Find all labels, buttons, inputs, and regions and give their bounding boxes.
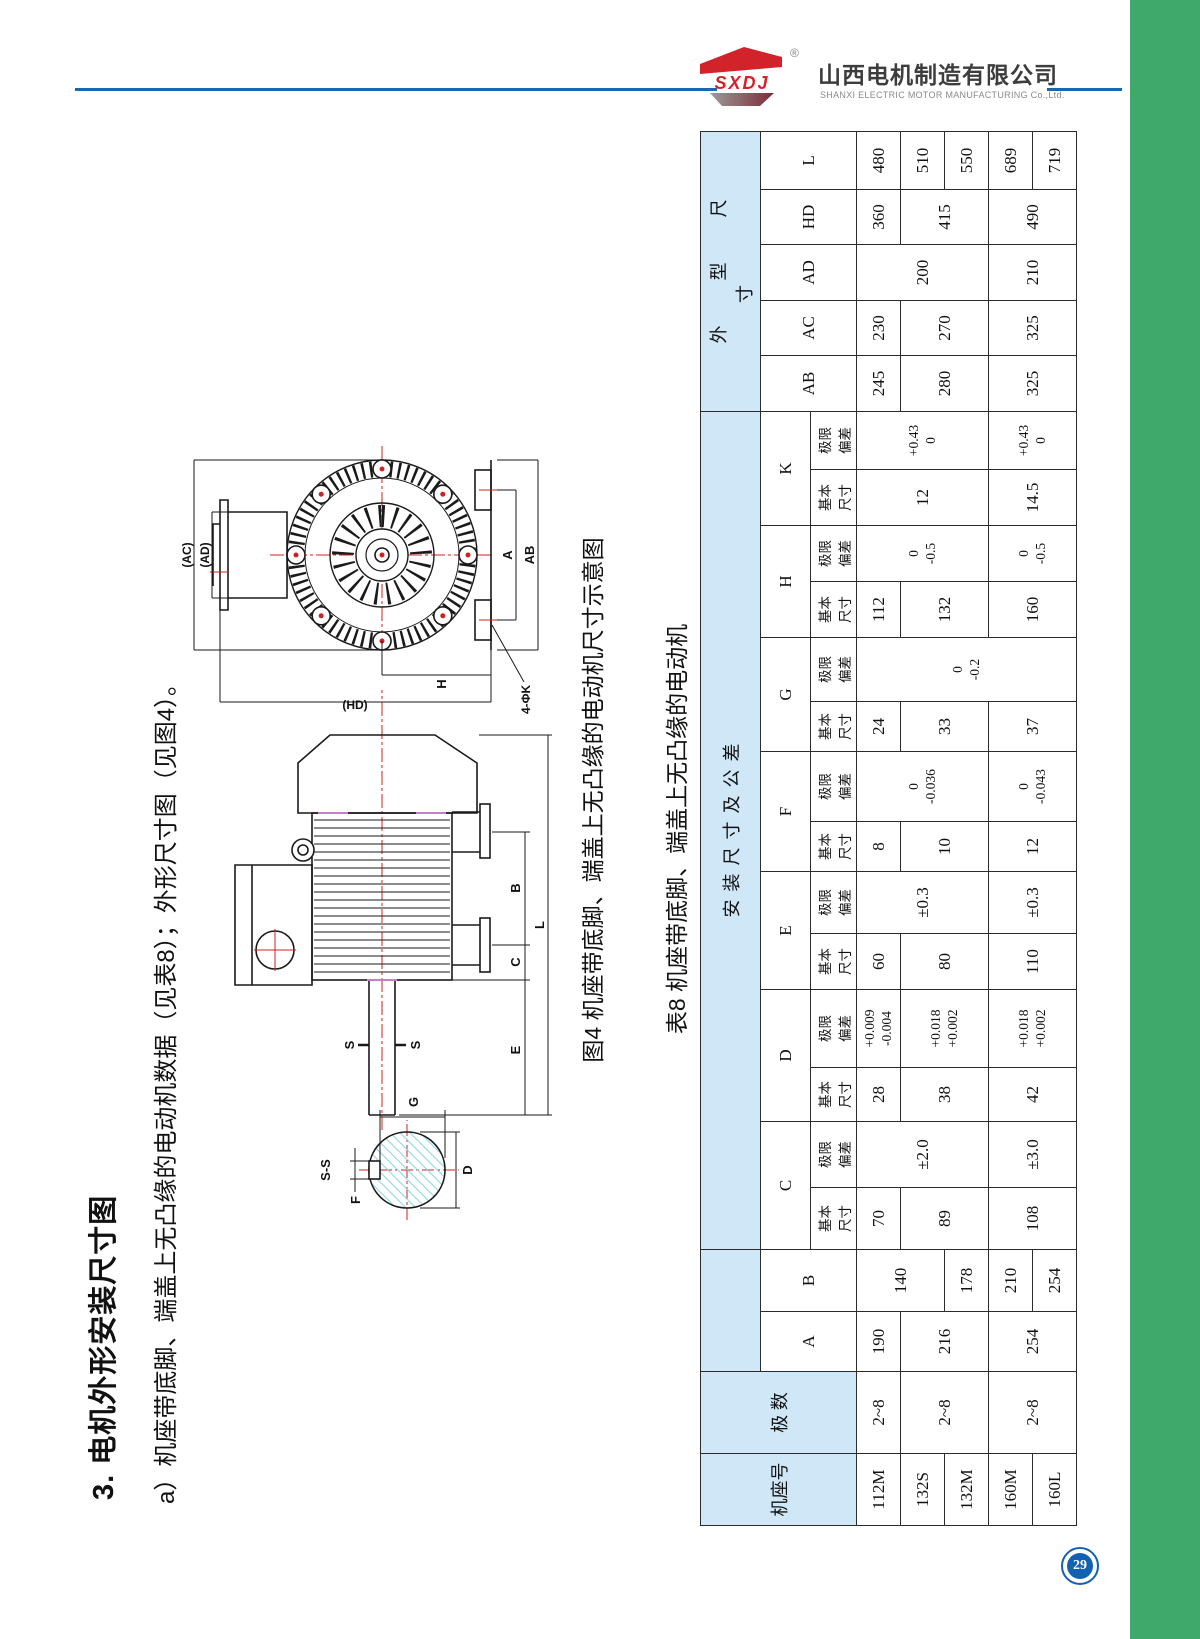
- dim-label-ad: (AD): [198, 542, 212, 567]
- dim-label-l: L: [532, 921, 547, 929]
- table-cell: 24: [857, 702, 901, 752]
- table-cell: 0 -0.043: [989, 752, 1077, 822]
- col-header-AB: AB: [761, 355, 857, 411]
- table-cell: 178: [945, 1250, 989, 1312]
- subheader-deviation: 极限 偏差: [811, 872, 857, 934]
- col-header-HD: HD: [761, 189, 857, 244]
- bolt-center-dot: [319, 613, 324, 618]
- col-header-F: F: [761, 752, 811, 872]
- table-cell: 33: [901, 702, 989, 752]
- subheader-basic: 基本 尺寸: [811, 934, 857, 990]
- dim-label-hd: (HD): [342, 698, 367, 712]
- dim-label-a: A: [500, 550, 515, 560]
- col-header-frame: 机座号: [701, 1454, 857, 1526]
- subheader-basic: 基本 尺寸: [811, 1188, 857, 1250]
- table-cell: 325: [989, 355, 1077, 411]
- table-cell: 60: [857, 934, 901, 990]
- table-cell: 80: [901, 934, 989, 990]
- table-cell: 12: [989, 822, 1077, 872]
- subheader-basic: 基本 尺寸: [811, 822, 857, 872]
- col-header-C: C: [761, 1122, 811, 1250]
- table-cell: 160L: [1033, 1454, 1077, 1526]
- table-cell: 108: [989, 1188, 1077, 1250]
- bolt-center-dot: [380, 467, 385, 472]
- dim-label-g: G: [406, 1097, 421, 1107]
- table-cell: 270: [901, 300, 989, 355]
- table-cell: 550: [945, 131, 989, 189]
- bolt-center-dot: [440, 492, 445, 497]
- table-cell: 245: [857, 355, 901, 411]
- page-number-badge: 29: [1061, 1547, 1099, 1585]
- col-header-D: D: [761, 990, 811, 1122]
- table-row: 112M2~819014070±2.028+0.009 -0.00460±0.3…: [857, 131, 901, 1525]
- subheader-deviation: 极限 偏差: [811, 1122, 857, 1188]
- table-cell: 14.5: [989, 470, 1077, 526]
- table-row: 160M2~8254210108±3.042+0.018 +0.002110±0…: [989, 131, 1033, 1525]
- table-cell: 2~8: [989, 1372, 1077, 1454]
- logo-wordmark: SXDJ: [714, 73, 769, 93]
- table-cell: 510: [901, 131, 945, 189]
- registered-mark: ®: [790, 46, 799, 60]
- table-cell: ±0.3: [989, 872, 1077, 934]
- section-mark-s1: S: [342, 1040, 357, 1049]
- table-cell: 89: [901, 1188, 989, 1250]
- table-cell: 689: [989, 131, 1033, 189]
- subheader-basic: 基本 尺寸: [811, 470, 857, 526]
- dim-label-ab: AB: [522, 546, 537, 565]
- col-header-AD: AD: [761, 244, 857, 300]
- table-cell: 0 -0.036: [857, 752, 989, 822]
- col-header-blank: [701, 1250, 761, 1372]
- table-cell: 719: [1033, 131, 1077, 189]
- table-cell: 325: [989, 300, 1077, 355]
- motor-side-view: E C B L S S: [235, 690, 552, 1130]
- col-header-AC: AC: [761, 300, 857, 355]
- subheader-basic: 基本 尺寸: [811, 582, 857, 638]
- table-cell: ±2.0: [857, 1122, 989, 1188]
- logo-roof-shape: [700, 47, 782, 74]
- table-cell: 10: [901, 822, 989, 872]
- col-header-K: K: [761, 411, 811, 525]
- dim-label-e: E: [508, 1045, 523, 1054]
- table-cell: 490: [989, 189, 1077, 244]
- table-cell: 480: [857, 131, 901, 189]
- bolt-center-dot: [294, 553, 299, 558]
- dim-label-f: F: [348, 1196, 363, 1204]
- dimensions-table: 机座号 极 数 安装尺寸及公差 外型尺寸 A B C D E F G H K A…: [700, 131, 1077, 1526]
- table-caption: 表8 机座带底脚、端盖上无凸缘的电动机: [658, 132, 692, 1526]
- section-title: 3. 电机外形安装尺寸图: [80, 1195, 122, 1500]
- table-cell: 112M: [857, 1454, 901, 1526]
- col-header-A: A: [761, 1312, 857, 1372]
- subheader-deviation: 极限 偏差: [811, 638, 857, 702]
- table-cell: 38: [901, 1068, 989, 1122]
- table-header-dims: A B C D E F G H K AB AC AD HD L: [761, 131, 811, 1525]
- table-cell: 254: [989, 1312, 1077, 1372]
- subheader-basic: 基本 尺寸: [811, 1068, 857, 1122]
- table-cell: 8: [857, 822, 901, 872]
- table-cell: 112: [857, 582, 901, 638]
- col-header-install-group: 安装尺寸及公差: [701, 411, 761, 1249]
- table-cell: 160M: [989, 1454, 1033, 1526]
- col-header-B: B: [761, 1250, 857, 1312]
- subheader-basic: 基本 尺寸: [811, 702, 857, 752]
- company-name-en: SHANXI ELECTRIC MOTOR MANUFACTURING Co.,…: [820, 90, 1065, 100]
- table-cell: 216: [901, 1312, 989, 1372]
- col-header-L: L: [761, 131, 857, 189]
- table-cell: 110: [989, 934, 1077, 990]
- bolt-center-dot: [319, 492, 324, 497]
- table-cell: 132M: [945, 1454, 989, 1526]
- table-header-groups: 机座号 极 数 安装尺寸及公差 外型尺寸: [701, 131, 761, 1525]
- col-header-H: H: [761, 526, 811, 638]
- table-cell: 230: [857, 300, 901, 355]
- table-cell: 28: [857, 1068, 901, 1122]
- manual-page: SXDJ ® 山西电机制造有限公司 SHANXI ELECTRIC MOTOR …: [0, 0, 1200, 1639]
- table-cell: 2~8: [857, 1372, 901, 1454]
- bolt-center-dot: [440, 613, 445, 618]
- dim-label-b: B: [508, 883, 523, 892]
- table-cell: 254: [1033, 1250, 1077, 1312]
- table-cell: ±0.3: [857, 872, 989, 934]
- dim-label-d: D: [460, 1165, 475, 1174]
- table-cell: +0.43 0: [857, 411, 989, 469]
- table-cell: 280: [901, 355, 989, 411]
- table-cell: +0.43 0: [989, 411, 1077, 469]
- header-rule-left: [75, 88, 717, 91]
- rotated-content: 3. 电机外形安装尺寸图 a）机座带底脚、端盖上无凸缘的电动机数据（见表8）；外…: [60, 100, 1080, 1540]
- green-sidebar: [1130, 0, 1200, 1639]
- dim-label-h: H: [434, 679, 449, 688]
- table-cell: 200: [857, 244, 989, 300]
- section-title-label: S-S: [318, 1159, 333, 1181]
- section-mark-s2: S: [408, 1040, 423, 1049]
- table-cell: 132: [901, 582, 989, 638]
- table-row: 132S2~82168938+0.018 +0.0028010331322802…: [901, 131, 945, 1525]
- subheader-deviation: 极限 偏差: [811, 990, 857, 1068]
- table-cell: 132S: [901, 1454, 945, 1526]
- table-cell: 210: [989, 244, 1077, 300]
- motor-front-view: (AC) (AD) (HD) H A AB 4-ΦK: [180, 443, 538, 714]
- table-cell: 42: [989, 1068, 1077, 1122]
- table-body: 112M2~819014070±2.028+0.009 -0.00460±0.3…: [857, 131, 1077, 1525]
- page-number: 29: [1067, 1553, 1093, 1579]
- dim-label-4k: 4-ΦK: [519, 684, 533, 714]
- table-cell: 360: [857, 189, 901, 244]
- dim-label-c: C: [508, 957, 523, 967]
- table-cell: 70: [857, 1188, 901, 1250]
- col-header-E: E: [761, 872, 811, 990]
- company-name-cn: 山西电机制造有限公司: [818, 56, 1058, 90]
- table-cell: 12: [857, 470, 989, 526]
- table-cell: 2~8: [901, 1372, 989, 1454]
- subheader-deviation: 极限 偏差: [811, 752, 857, 822]
- table-cell: +0.018 +0.002: [989, 990, 1077, 1068]
- table-cell: 415: [901, 189, 989, 244]
- col-header-outline-group: 外型尺寸: [701, 131, 761, 411]
- subheader-deviation: 极限 偏差: [811, 411, 857, 469]
- col-header-G: G: [761, 638, 811, 752]
- technical-drawing: S-S F G D: [180, 400, 565, 1250]
- table-cell: 0 -0.5: [857, 526, 989, 582]
- section-subtitle: a）机座带底脚、端盖上无凸缘的电动机数据（见表8）；外形尺寸图（见图4）。: [146, 672, 181, 1504]
- table-cell: 190: [857, 1312, 901, 1372]
- table-cell: 160: [989, 582, 1077, 638]
- table-cell: 0 -0.5: [989, 526, 1077, 582]
- table-cell: 140: [857, 1250, 945, 1312]
- bolt-center-dot: [466, 553, 471, 558]
- col-header-poles: 极 数: [701, 1372, 857, 1454]
- dim-label-ac: (AC): [180, 542, 194, 567]
- table-cell: +0.009 -0.004: [857, 990, 901, 1068]
- table-cell: 210: [989, 1250, 1033, 1312]
- table-cell: 0 -0.2: [857, 638, 1077, 702]
- figure-caption: 图4 机座带底脚、端盖上无凸缘的电动机尺寸示意图: [574, 490, 608, 1110]
- table-cell: 37: [989, 702, 1077, 752]
- table-cell: +0.018 +0.002: [901, 990, 989, 1068]
- subheader-deviation: 极限 偏差: [811, 526, 857, 582]
- table-cell: ±3.0: [989, 1122, 1077, 1188]
